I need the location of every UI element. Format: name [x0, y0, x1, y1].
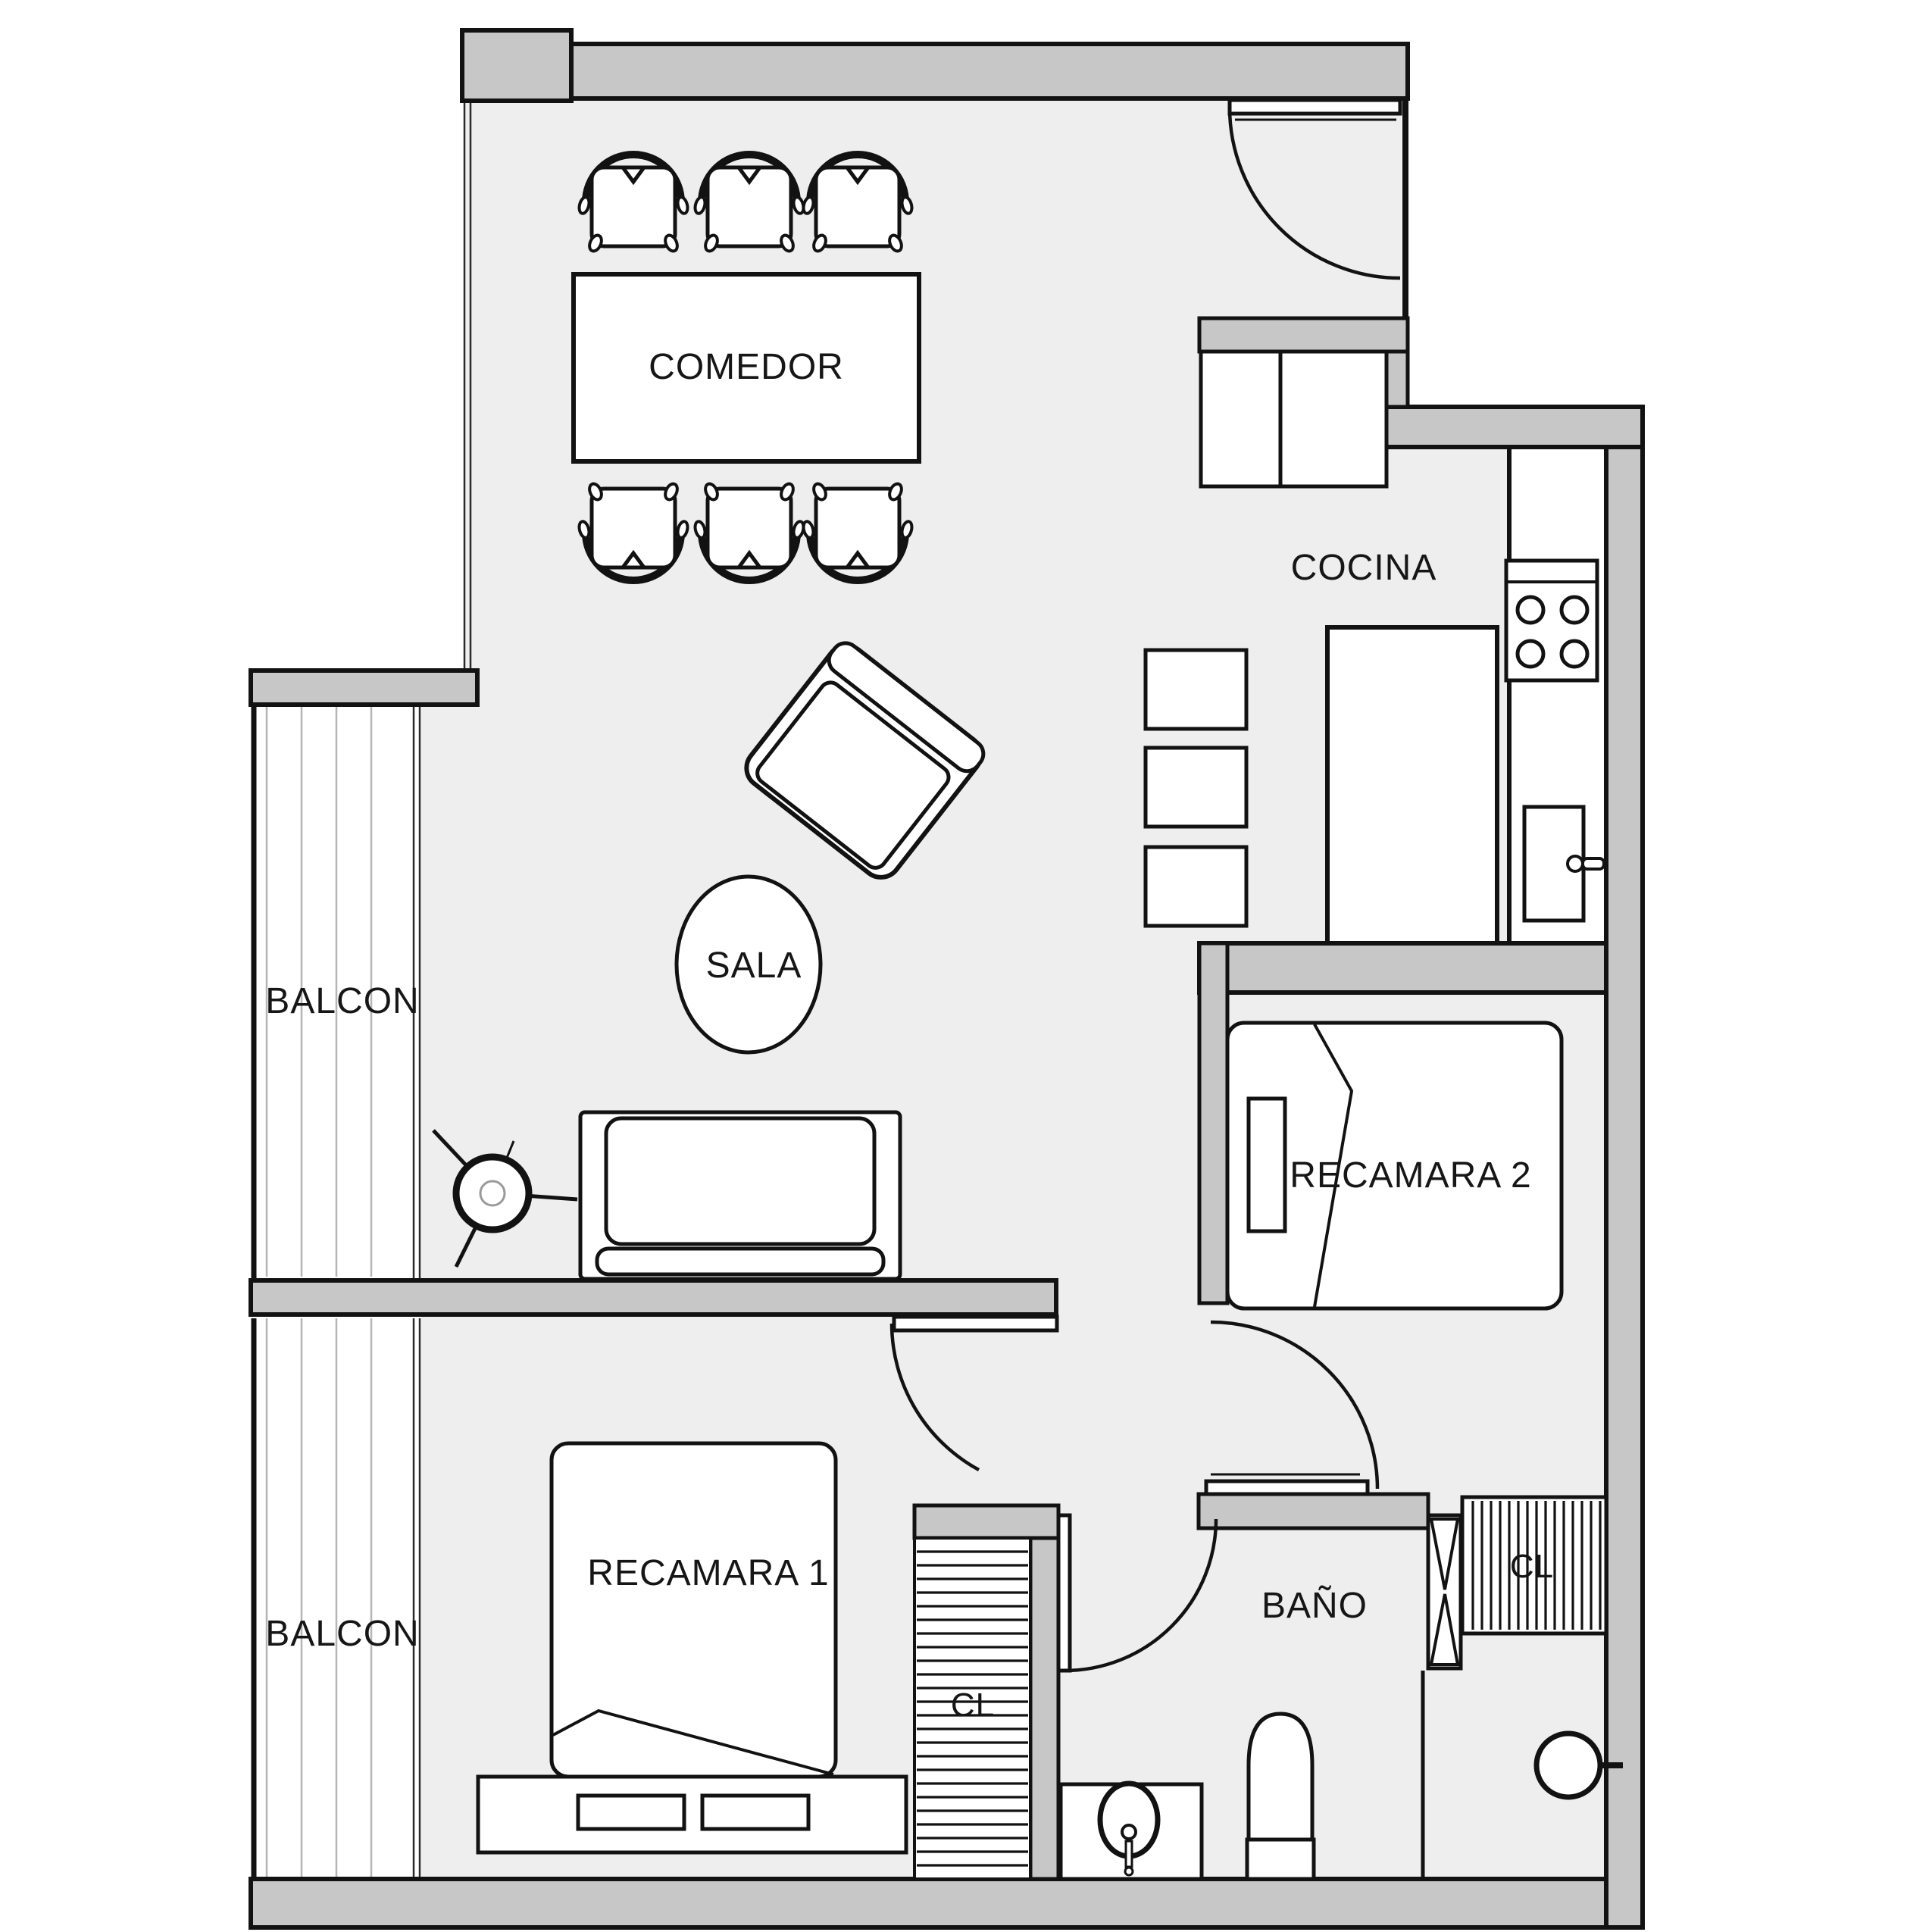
bathroom-faucet: [1122, 1825, 1136, 1839]
wall-kitchen-step-top: [1380, 407, 1643, 447]
wall-entry-edge: [1402, 98, 1408, 320]
bed1-base: [478, 1777, 906, 1852]
entrance-door-leaf: [1230, 100, 1400, 114]
bar-stool: [1146, 748, 1246, 827]
dining-chair: [693, 155, 805, 253]
bedroom1-door-leaf: [894, 1317, 1057, 1330]
bed1-pillow: [578, 1796, 684, 1829]
closet-bifold-door: [1428, 1515, 1461, 1668]
stove-burner: [1562, 597, 1587, 623]
dining-chair: [802, 482, 913, 580]
stove-burner: [1518, 597, 1543, 623]
dining-chair: [577, 155, 689, 253]
stove-burner: [1562, 641, 1587, 667]
balcony-lower-deck: [256, 1318, 413, 1879]
stove-burner: [1518, 641, 1543, 667]
room-label-balcon-lower: BALCON: [265, 1614, 419, 1654]
floor-plan-page: COMEDOR COCINA SALA BALCON BALCON RECAMA…: [0, 0, 1932, 1932]
bed2-pillow: [1249, 1099, 1285, 1231]
wall-closet-left-spine: [1030, 1538, 1058, 1879]
bathroom-door-leaf: [1058, 1515, 1070, 1671]
wall-closet-left-cap: [914, 1505, 1058, 1538]
room-label-recamara1: RECAMARA 1: [587, 1553, 829, 1593]
bathroom-sink: [1061, 1784, 1202, 1879]
wall-bedroom2-left: [1199, 943, 1227, 1303]
wall-top-left-pier: [462, 30, 571, 101]
sofa: [580, 1112, 900, 1279]
wall-living-bedroom1: [251, 1280, 1056, 1315]
room-label-cl-left: CL: [951, 1687, 995, 1724]
wall-bathroom-top: [1199, 1494, 1428, 1528]
wall-kitchen-bedroom2: [1199, 943, 1606, 993]
room-label-comedor: COMEDOR: [649, 347, 844, 387]
dining-chair: [693, 482, 805, 580]
room-label-sala: SALA: [706, 946, 802, 986]
kitchen-faucet: [1568, 856, 1583, 871]
stove: [1506, 561, 1597, 680]
wall-bottom: [251, 1879, 1643, 1927]
dining-chair: [802, 155, 913, 253]
toilet-tank: [1247, 1840, 1314, 1879]
refrigerator-cabinet: [1201, 352, 1386, 486]
toilet: [1247, 1714, 1314, 1879]
dining-chair: [577, 482, 689, 580]
wall-balcony-cap: [251, 671, 477, 705]
bar-stool: [1146, 847, 1246, 926]
kitchen-island: [1327, 627, 1497, 943]
room-label-recamara2: RECAMARA 2: [1290, 1155, 1531, 1196]
bed1-pillow: [702, 1796, 808, 1829]
room-label-balcon-upper: BALCON: [265, 981, 419, 1021]
bed1-mattress: [552, 1443, 836, 1777]
room-label-cl-right: CL: [1510, 1548, 1554, 1585]
bedroom2-door-leaf: [1206, 1481, 1368, 1494]
room-label-bano: BAÑO: [1261, 1585, 1368, 1626]
room-label-cocina: COCINA: [1291, 548, 1437, 588]
floor-plan-svg: COMEDOR COCINA SALA BALCON BALCON RECAMA…: [0, 0, 1932, 1932]
wall-right: [1606, 447, 1643, 1927]
bar-stool: [1146, 650, 1246, 729]
wall-above-fridge: [1199, 318, 1408, 352]
wall-top: [571, 44, 1408, 98]
